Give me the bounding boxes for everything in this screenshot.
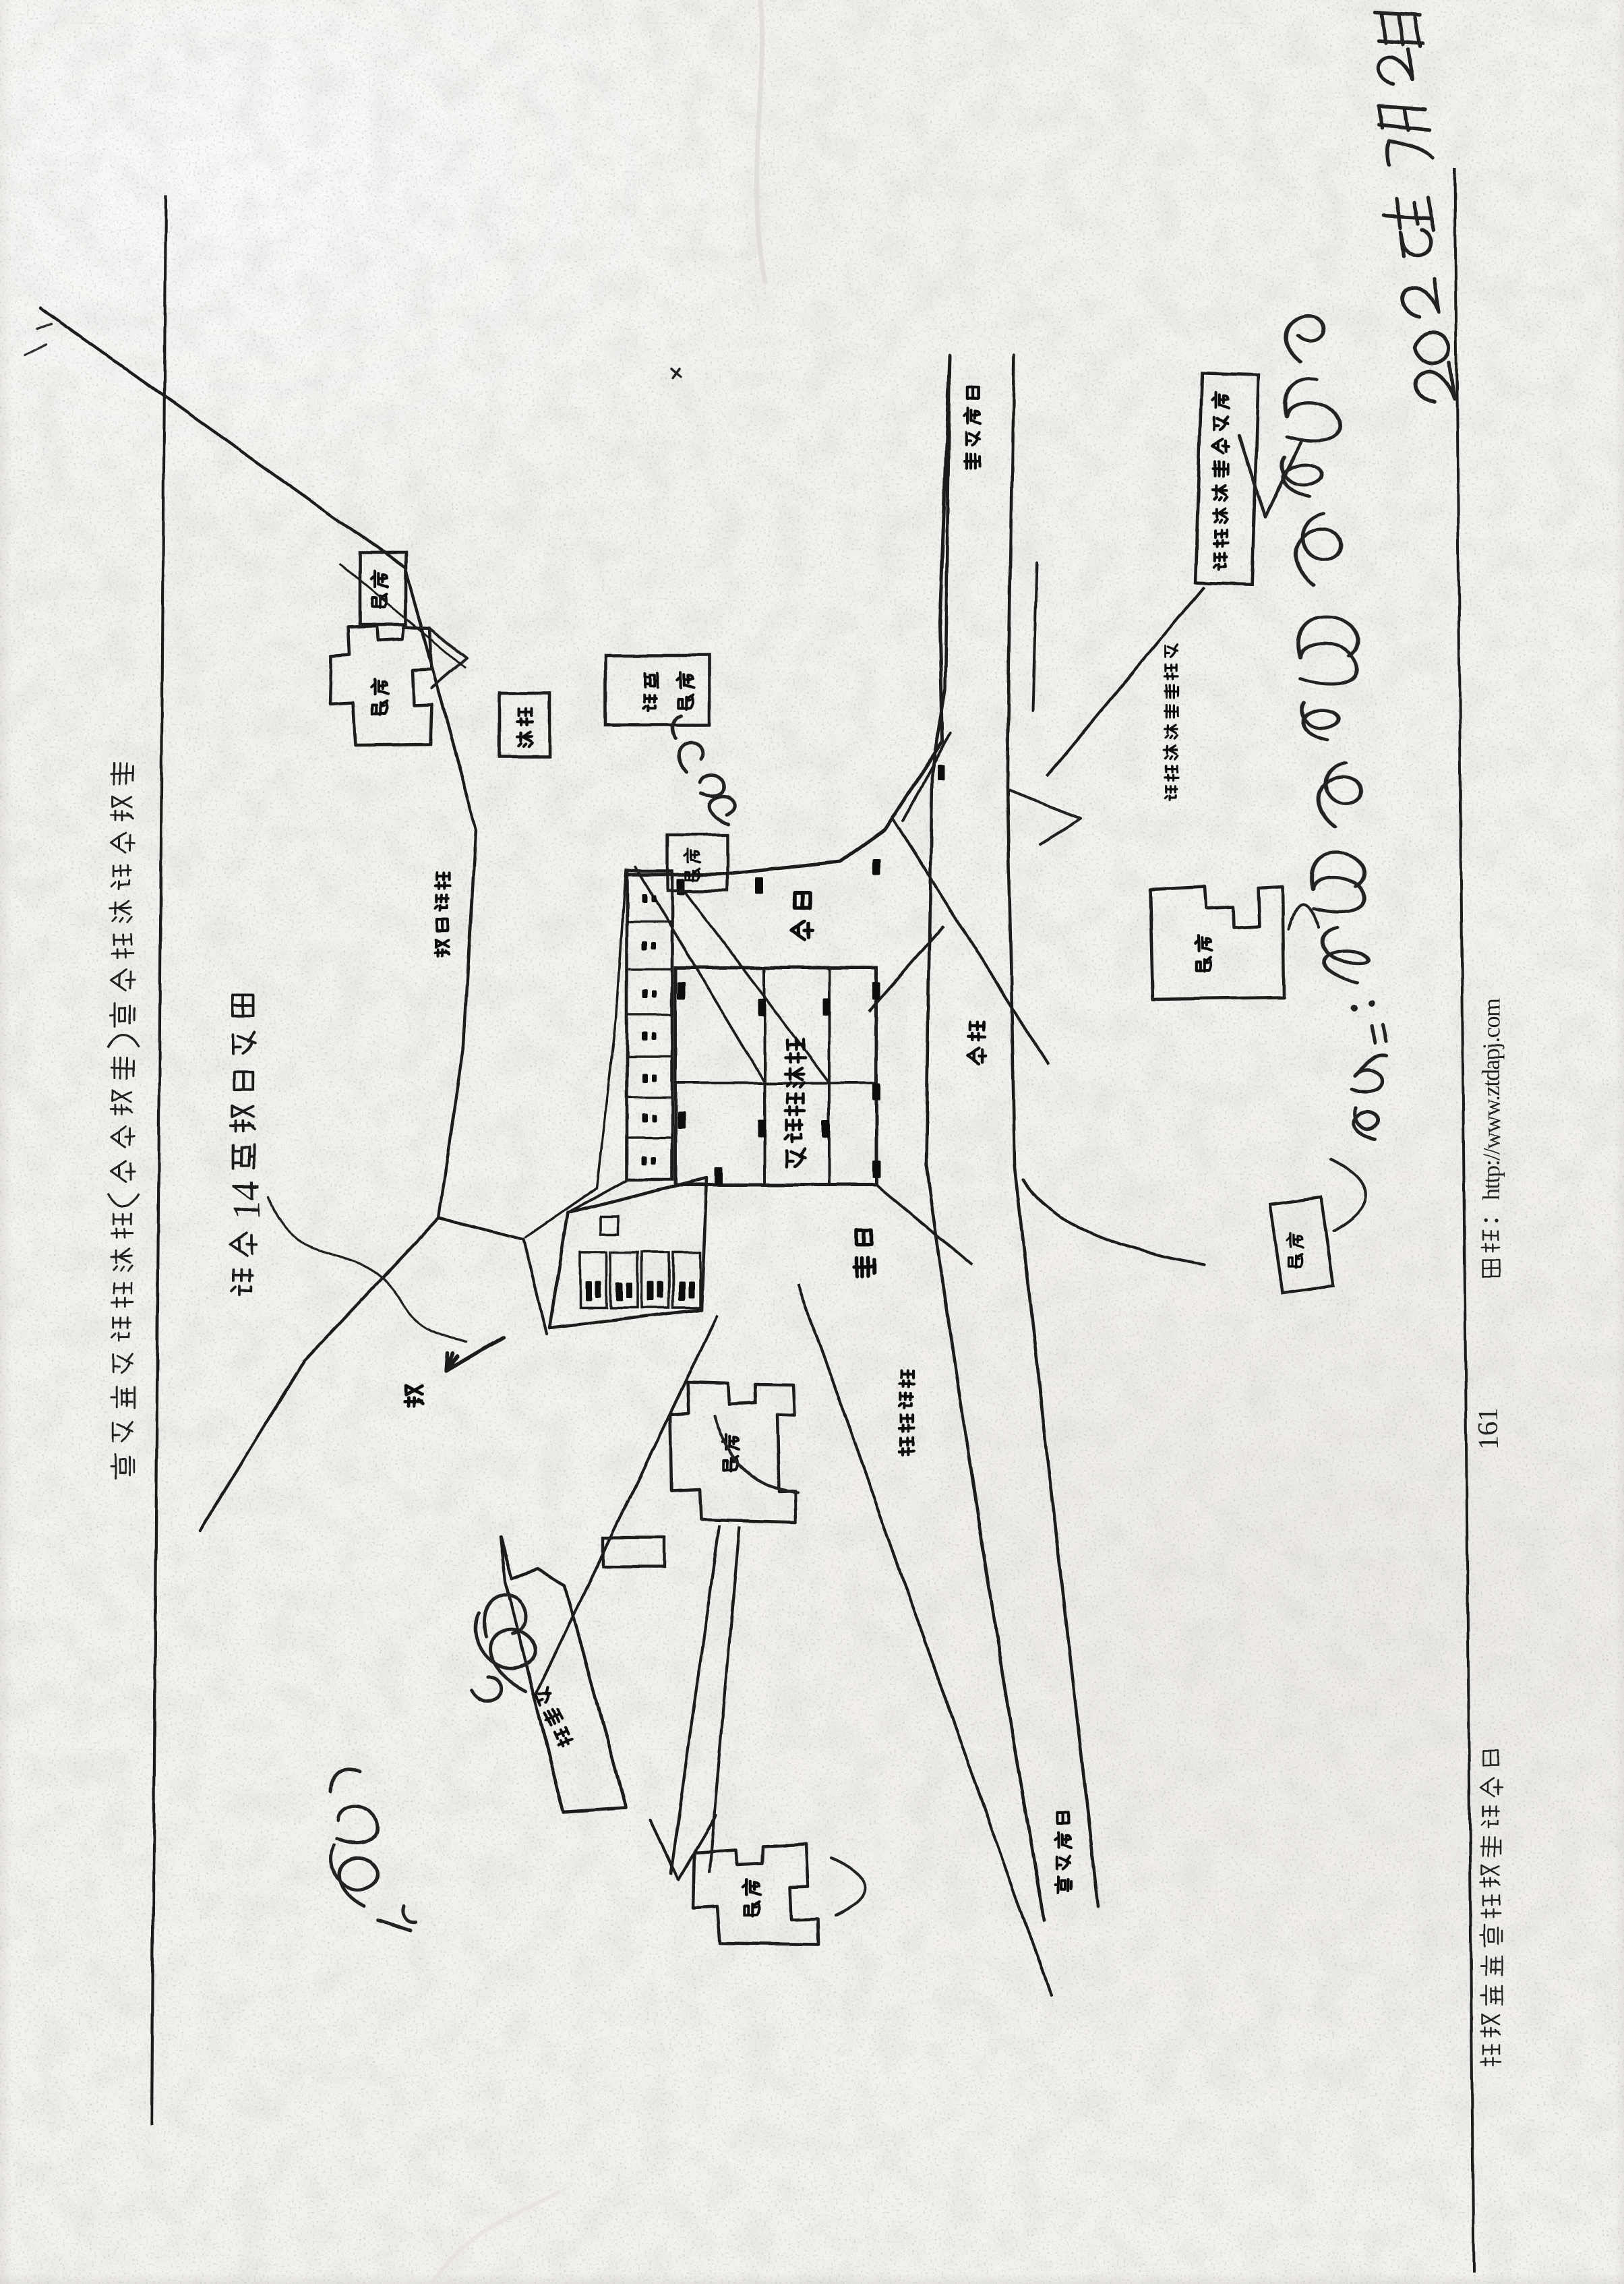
- svg-text:161: 161: [1474, 1407, 1505, 1450]
- svg-text:14: 14: [224, 1181, 268, 1220]
- svg-text:http://www.ztdapj.com: http://www.ztdapj.com: [1478, 998, 1505, 1200]
